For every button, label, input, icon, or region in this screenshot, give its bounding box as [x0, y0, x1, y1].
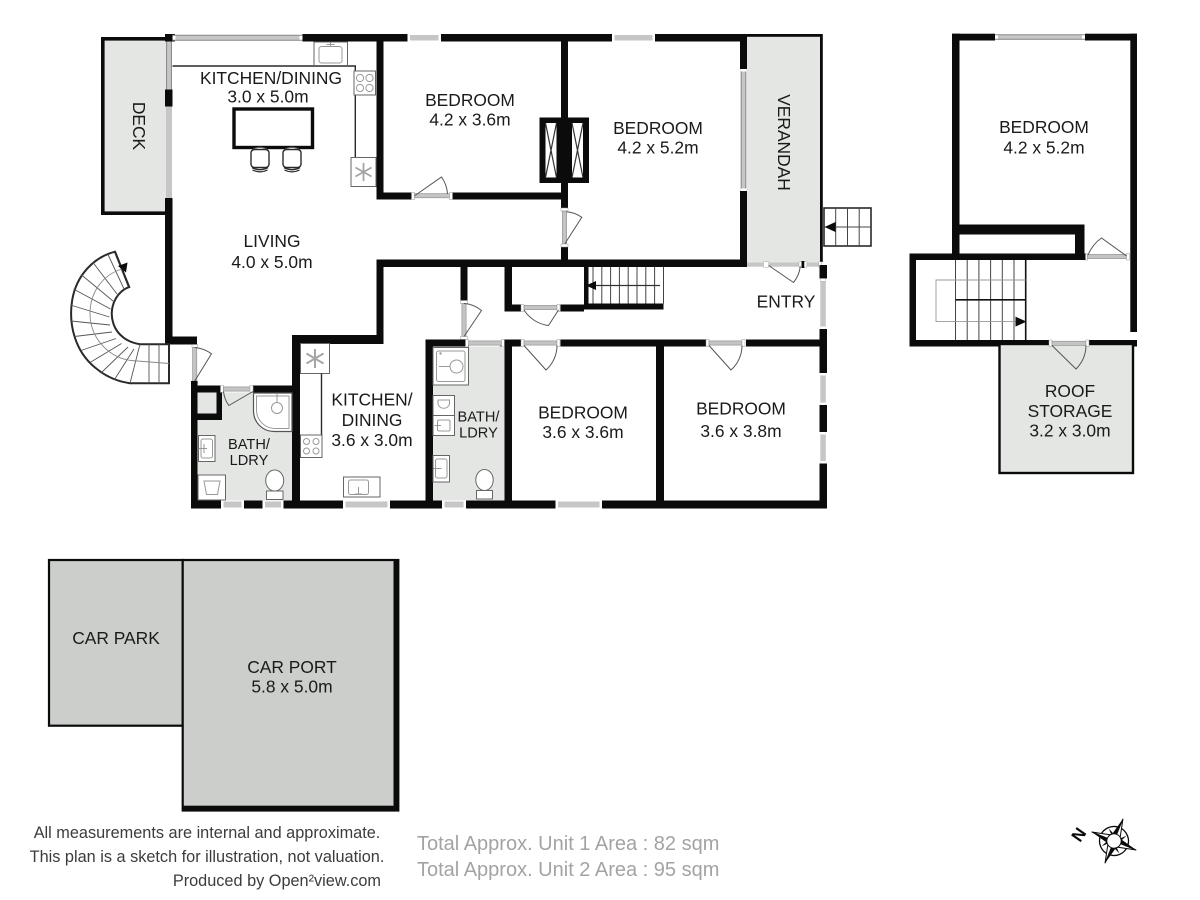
svg-text:BATH/: BATH/: [458, 410, 501, 426]
svg-text:ROOF: ROOF: [1045, 381, 1095, 401]
svg-text:CAR PORT: CAR PORT: [247, 657, 337, 677]
svg-text:3.6 x 3.0m: 3.6 x 3.0m: [331, 430, 412, 450]
svg-text:DINING: DINING: [342, 410, 403, 430]
svg-text:LDRY: LDRY: [459, 426, 498, 442]
svg-text:5.8 x 5.0m: 5.8 x 5.0m: [251, 677, 332, 697]
svg-text:3.0 x 5.0m: 3.0 x 5.0m: [227, 87, 308, 107]
svg-text:3.2 x 3.0m: 3.2 x 3.0m: [1029, 421, 1110, 441]
svg-text:LIVING: LIVING: [243, 231, 300, 251]
svg-text:Total Approx. Unit 1 Area : 82: Total Approx. Unit 1 Area : 82 sqm: [417, 833, 719, 855]
svg-text:4.2 x 5.2m: 4.2 x 5.2m: [1003, 138, 1084, 158]
svg-text:3.6 x 3.8m: 3.6 x 3.8m: [700, 421, 781, 441]
svg-text:BATH/: BATH/: [228, 437, 271, 453]
svg-text:KITCHEN/DINING: KITCHEN/DINING: [200, 68, 342, 88]
svg-text:BEDROOM: BEDROOM: [538, 403, 628, 423]
svg-text:BEDROOM: BEDROOM: [613, 118, 703, 138]
svg-text:BEDROOM: BEDROOM: [696, 399, 786, 419]
svg-text:4.2 x 5.2m: 4.2 x 5.2m: [617, 138, 698, 158]
svg-text:KITCHEN/: KITCHEN/: [331, 390, 412, 410]
svg-text:4.2 x 3.6m: 4.2 x 3.6m: [429, 110, 510, 130]
svg-text:BEDROOM: BEDROOM: [425, 90, 515, 110]
svg-text:DECK: DECK: [129, 102, 149, 151]
svg-text:STORAGE: STORAGE: [1028, 401, 1113, 421]
svg-text:CAR PARK: CAR PARK: [72, 628, 160, 648]
svg-text:LDRY: LDRY: [230, 453, 269, 469]
svg-text:This plan is a sketch for illu: This plan is a sketch for illustration, …: [30, 848, 385, 866]
svg-text:ENTRY: ENTRY: [757, 292, 816, 312]
svg-text:3.6 x 3.6m: 3.6 x 3.6m: [542, 422, 623, 442]
svg-text:Total Approx. Unit 2 Area : 95: Total Approx. Unit 2 Area : 95 sqm: [417, 859, 719, 881]
svg-text:Produced by Open²view.com: Produced by Open²view.com: [173, 872, 381, 890]
svg-text:VERANDAH: VERANDAH: [774, 94, 794, 191]
svg-text:BEDROOM: BEDROOM: [999, 117, 1089, 137]
svg-text:All measurements are internal: All measurements are internal and approx…: [34, 824, 381, 842]
svg-text:4.0 x 5.0m: 4.0 x 5.0m: [231, 252, 312, 272]
